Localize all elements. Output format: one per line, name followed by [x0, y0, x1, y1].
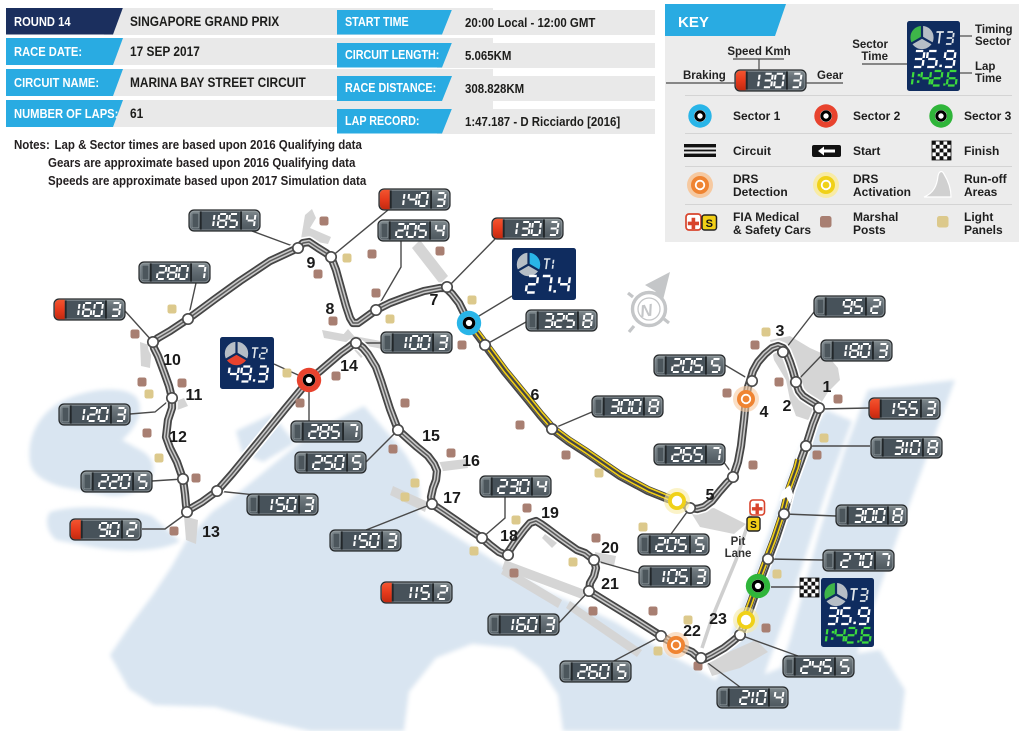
svg-text:Speed Kmh: Speed Kmh [727, 46, 790, 58]
svg-text:Braking: Braking [683, 70, 726, 82]
svg-text:Posts: Posts [853, 223, 886, 237]
svg-text:Sector 2: Sector 2 [853, 109, 901, 123]
svg-text:Activation: Activation [853, 185, 911, 199]
svg-text:DRS: DRS [853, 172, 878, 186]
svg-text:Sector 3: Sector 3 [964, 109, 1012, 123]
svg-text:DRS: DRS [733, 172, 758, 186]
svg-text:Marshal: Marshal [853, 210, 898, 224]
svg-text:Time: Time [861, 51, 888, 63]
svg-text:Gear: Gear [817, 70, 844, 82]
svg-text:Time: Time [975, 73, 1002, 85]
svg-text:Light: Light [964, 210, 993, 224]
svg-text:Sector: Sector [975, 36, 1011, 48]
svg-text:Start: Start [853, 144, 880, 158]
svg-text:Panels: Panels [964, 223, 1003, 237]
svg-text:Circuit: Circuit [733, 144, 771, 158]
svg-text:KEY: KEY [678, 14, 709, 31]
svg-text:Areas: Areas [964, 185, 998, 199]
svg-text:Sector: Sector [852, 39, 888, 51]
svg-text:S: S [706, 218, 713, 230]
svg-text:Detection: Detection [733, 185, 788, 199]
svg-text:Run-off: Run-off [964, 172, 1008, 186]
svg-text:& Safety Cars: & Safety Cars [733, 223, 811, 237]
svg-text:Sector 1: Sector 1 [733, 109, 781, 123]
svg-text:Timing: Timing [975, 24, 1012, 36]
svg-text:Lap: Lap [975, 61, 995, 73]
svg-text:FIA Medical: FIA Medical [733, 210, 799, 224]
svg-text:Finish: Finish [964, 144, 999, 158]
